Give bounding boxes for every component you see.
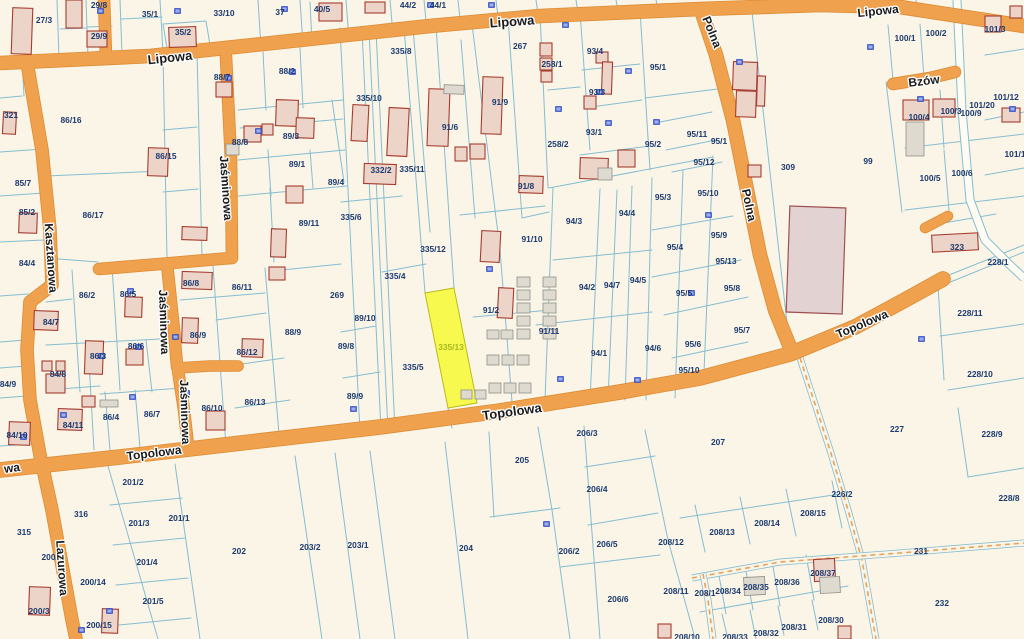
parcel-label: 100/6 [952,168,973,178]
parcel-label: 86/13 [245,397,266,407]
outbuilding [517,316,530,326]
building [206,411,225,430]
outbuilding [517,303,530,313]
parcel-label: 86/2 [79,290,96,300]
parcel-label: 228/8 [999,493,1020,503]
parcel-label: 208/10 [674,632,700,639]
building [838,626,851,639]
building [387,108,409,157]
parcel-label: 95/6 [685,339,702,349]
parcel-label: 201/5 [143,596,164,606]
building [126,349,143,365]
parcel-label: 227 [890,424,904,434]
parcel-label: 84/10 [7,430,28,440]
outbuilding [543,303,556,313]
parcel-label: 335/4 [385,271,406,281]
address-marker-glyph [869,46,873,49]
address-marker-glyph [707,214,711,217]
address-marker-glyph [564,24,568,27]
parcel-label: 86/6 [128,341,145,351]
parcel-label: 323 [950,242,964,252]
parcel-label: 101/20 [969,100,995,110]
parcel-label: 93/3 [589,87,606,97]
parcel-label: 332/2 [371,165,392,175]
parcel-label: 86/7 [144,409,161,419]
parcel-label: 33/10 [214,8,235,18]
parcel-label: 94/1 [591,348,608,358]
parcel-label: 95/5 [676,288,693,298]
map-viewport[interactable]: 27/329/835/133/103740/544/244/135/229/93… [0,0,1024,639]
parcel-label: 321 [4,110,18,120]
parcel-label: 208/32 [753,628,779,638]
parcel-label: 95/1 [711,136,728,146]
outbuilding [820,576,841,593]
address-marker-glyph [919,98,923,101]
parcel-label: 200/15 [86,620,112,630]
building [756,76,765,106]
outbuilding [517,355,529,365]
parcel-label: 29/9 [91,31,108,41]
outbuilding [487,330,499,339]
building [540,43,552,56]
street-label-lipowa: Lipowa [489,12,535,30]
parcel-label: 91/10 [522,234,543,244]
building [11,8,33,55]
building [736,91,757,118]
parcel-label: 86/15 [156,151,177,161]
parcel-label: 206/6 [608,594,629,604]
outbuilding [906,122,924,156]
parcel-label: 228/1 [988,257,1009,267]
address-marker-glyph [920,338,924,341]
outbuilding [504,383,516,393]
parcel-label: 84/9 [0,379,16,389]
outbuilding [598,168,612,180]
building [82,396,95,407]
parcel-label: 88/7 [214,72,231,82]
parcel-label: 228/9 [982,429,1003,439]
address-marker-glyph [655,121,659,124]
parcel-label: 86/9 [190,330,207,340]
parcel-label: 201/1 [169,513,190,523]
address-marker-glyph [1011,108,1015,111]
address-marker-glyph [559,378,563,381]
parcel-label: 206/4 [587,484,608,494]
address-marker-glyph [607,122,611,125]
parcel-label: 89/11 [299,218,320,228]
parcel-label: 309 [781,162,795,172]
parcel-label: 91/6 [442,122,459,132]
building [748,165,761,177]
parcel-label: 95/7 [734,325,751,335]
parcel-label: 269 [330,290,344,300]
parcel-label: 84/8 [50,369,67,379]
parcel-label: 85/2 [19,207,36,217]
cadastral-map[interactable]: 27/329/835/133/103740/544/244/135/229/93… [0,0,1024,639]
parcel-label: 94/2 [579,282,596,292]
parcel-label: 95/1 [650,62,667,72]
building [658,624,671,638]
parcel-label: 89/8 [338,341,355,351]
parcel-label: 44/1 [430,0,447,10]
parcel-label: 208/14 [754,518,780,528]
building [427,89,450,147]
parcel-label: 94/6 [645,343,662,353]
parcel-label: 200/3 [29,606,50,616]
parcel-label: 95/10 [698,188,719,198]
parcel-label: 89/10 [355,313,376,323]
parcel-label: 208/33 [722,632,748,639]
parcel-label: 95/12 [694,157,715,167]
outbuilding [487,355,499,365]
parcel-label: 94/3 [566,216,583,226]
outbuilding [517,277,530,287]
parcel-label: 44/2 [400,0,417,10]
parcel-label: 94/4 [619,208,636,218]
parcel-label: 29/8 [91,0,108,10]
parcel-label: 35/2 [175,27,192,37]
parcel-label: 88/9 [285,327,302,337]
parcel-label: 206/3 [577,428,598,438]
outbuilding [501,330,513,339]
parcel-label: 100/5 [920,173,941,183]
parcel-label: 89/4 [328,177,345,187]
address-marker-glyph [131,396,135,399]
outbuilding [502,355,514,365]
address-marker-glyph [636,379,640,382]
parcel-label: 201/3 [129,518,150,528]
building [455,147,467,161]
building [286,186,303,203]
address-marker-glyph [108,610,112,613]
parcel-label: 86/16 [61,115,82,125]
parcel-label: 203/1 [348,540,369,550]
parcel-label: 88/8 [232,137,249,147]
parcel-label: 95/13 [716,256,737,266]
parcel-label: 335/10 [356,93,382,103]
address-marker-glyph [488,268,492,271]
outbuilding [489,383,501,393]
parcel-label: 208/31 [781,622,807,632]
parcel-label: 84/11 [63,420,84,430]
parcel-label: 200/14 [80,577,106,587]
parcel-label: 208/1 [695,588,716,598]
address-marker-glyph [80,629,84,632]
parcel-label: 101/1 [1005,149,1024,159]
parcel-label: 99 [863,156,873,166]
address-marker-glyph [62,414,66,417]
parcel-label: 86/5 [120,289,137,299]
outbuilding [475,390,486,399]
building [584,96,596,109]
parcel-label: 89/1 [289,159,306,169]
building [470,144,485,159]
parcel-label: 91/9 [492,97,509,107]
parcel-label: 258/1 [542,59,563,69]
parcel-label: 228/11 [957,308,982,318]
parcel-label: 203/2 [300,542,321,552]
parcel-label: 95/10 [679,365,700,375]
building [480,231,501,263]
outbuilding [519,383,531,393]
building [66,0,82,28]
parcel-label: 207 [711,437,725,447]
address-marker-glyph [557,108,561,111]
outbuilding [543,316,556,326]
parcel-label: 208/35 [743,582,769,592]
street-label-wa: wa [2,460,21,476]
parcel-label: 208/11 [663,586,688,596]
parcel-label: 27/3 [36,15,53,25]
building [262,124,273,135]
parcel-label: 35/1 [142,9,159,19]
building [497,288,514,319]
building [271,229,287,258]
parcel-label: 89/9 [347,391,364,401]
parcel-label: 208/15 [800,508,826,518]
parcel-label: 208/37 [810,568,836,578]
building [125,297,143,318]
address-marker-glyph [176,10,180,13]
parcel-label: 205 [515,455,529,465]
parcel-label: 93/1 [586,127,603,137]
parcel-label: 202 [232,546,246,556]
address-marker-glyph [738,61,742,64]
outbuilding [461,390,472,399]
address-marker-glyph [257,130,261,133]
building [541,71,552,82]
parcel-label: 201/4 [137,557,158,567]
parcel-label: 95/9 [711,230,728,240]
building [276,100,299,127]
parcel-label: 208/13 [709,527,735,537]
parcel-label: 100/1 [895,33,916,43]
building [365,2,385,13]
parcel-label: 95/8 [724,283,741,293]
parcel-label: 226/2 [832,489,853,499]
parcel-label: 37 [275,7,285,17]
street-label-jaśminowa: Jaśminowa [156,289,172,354]
parcel-label: 84/4 [19,258,36,268]
building [1010,6,1022,18]
parcel-label: 100/4 [909,112,930,122]
parcel-label: 86/17 [83,210,104,220]
parcel-label: 88/2 [279,66,296,76]
parcel-label: 85/7 [15,178,32,188]
parcel-label: 100/2 [926,28,947,38]
parcel-label: 208/12 [658,537,684,547]
parcel-label: 100/3 [941,106,962,116]
parcel-label: 335/8 [391,46,412,56]
parcel-label: 335/5 [403,362,424,372]
parcel-label: 335/6 [341,212,362,222]
parcel-label: 86/3 [90,351,107,361]
building [269,267,285,280]
parcel-label: 316 [74,509,88,519]
parcel-label: 91/2 [483,305,500,315]
parcel-label: 95/4 [667,242,684,252]
building [786,206,846,314]
parcel-label: 208/30 [818,615,844,625]
parcel-label: 206/5 [597,539,618,549]
outbuilding [543,277,556,287]
address-marker-glyph [545,523,549,526]
address-marker-glyph [174,336,178,339]
parcel-label: 94/5 [630,275,647,285]
street-label-jaśminowa: Jaśminowa [177,379,193,444]
parcel-label: 206/2 [559,546,580,556]
parcel-label: 201/2 [123,477,144,487]
parcel-label: 258/2 [548,139,569,149]
address-marker-glyph [627,70,631,73]
building [182,227,207,241]
parcel-label: 86/8 [183,278,200,288]
parcel-label: 232 [935,598,949,608]
parcel-label: 93/4 [587,46,604,56]
parcel-label: 84/7 [43,317,60,327]
parcel-label: 208/36 [774,577,800,587]
selected-parcel-label: 335/13 [438,342,464,352]
parcel-label: 95/11 [687,129,708,139]
parcel-label: 208/34 [715,586,741,596]
parcel-label: 91/8 [518,181,535,191]
parcel-label: 267 [513,41,527,51]
outbuilding [517,290,530,300]
parcel-label: 86/4 [103,412,120,422]
outbuilding [517,329,530,339]
parcel-label: 89/3 [283,131,300,141]
building [351,105,369,142]
road-Jasminowa-4 [177,366,238,368]
parcel-label: 335/11 [399,164,424,174]
parcel-label: 315 [17,527,31,537]
parcel-label: 40/5 [314,4,331,14]
parcel-label: 101/12 [993,92,1019,102]
parcel-label: 335/12 [420,244,446,254]
parcel-label: 95/2 [645,139,662,149]
parcel-label: 228/10 [967,369,993,379]
parcel-label: 95/3 [655,192,672,202]
building [618,150,635,167]
address-marker-glyph [352,408,356,411]
parcel-label: 204 [459,543,473,553]
parcel-label: 86/11 [232,282,253,292]
parcel-label: 86/10 [202,403,223,413]
outbuilding [100,400,118,407]
building [216,82,232,97]
parcel-label: 231 [914,546,928,556]
building [733,62,758,91]
parcel-label: 86/12 [237,347,258,357]
address-marker-glyph [490,4,494,7]
parcel-label: 101/3 [985,24,1006,34]
outbuilding [543,290,556,300]
parcel-label: 91/11 [539,326,560,336]
outbuilding [444,85,464,95]
parcel-label: 94/7 [604,280,621,290]
